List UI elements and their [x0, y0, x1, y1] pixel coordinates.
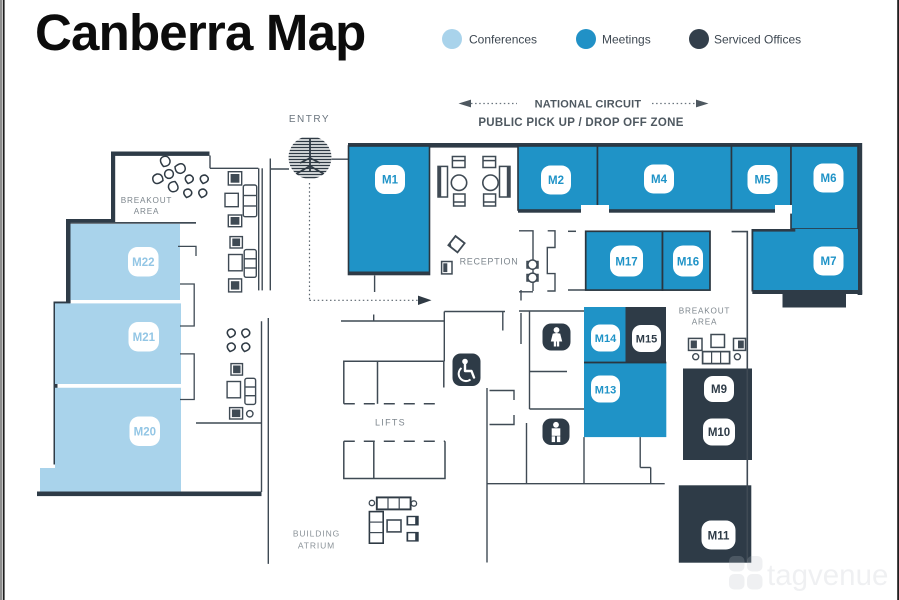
svg-text:PUBLIC PICK UP / DROP OFF ZONE: PUBLIC PICK UP / DROP OFF ZONE [478, 117, 683, 129]
svg-text:M11: M11 [708, 531, 730, 543]
svg-text:LIFTS: LIFTS [375, 418, 406, 428]
svg-text:M1: M1 [382, 175, 399, 187]
svg-text:M5: M5 [755, 175, 772, 187]
svg-text:M10: M10 [708, 427, 730, 439]
svg-text:M20: M20 [134, 427, 156, 439]
svg-text:ATRIUM: ATRIUM [298, 541, 335, 551]
svg-text:M15: M15 [636, 334, 657, 346]
svg-text:M13: M13 [595, 385, 616, 397]
svg-text:Meetings: Meetings [602, 33, 651, 47]
svg-text:Canberra Map: Canberra Map [35, 4, 366, 61]
svg-text:AREA: AREA [134, 207, 160, 216]
svg-text:BREAKOUT: BREAKOUT [121, 196, 172, 205]
svg-text:M21: M21 [133, 332, 156, 344]
svg-text:tagvenue: tagvenue [767, 559, 888, 592]
svg-text:RECEPTION: RECEPTION [460, 257, 519, 267]
svg-text:NATIONAL CIRCUIT: NATIONAL CIRCUIT [535, 99, 642, 111]
svg-text:M6: M6 [821, 173, 837, 185]
svg-text:Serviced Offices: Serviced Offices [714, 33, 801, 47]
svg-text:M2: M2 [548, 175, 564, 187]
svg-text:BUILDING: BUILDING [293, 529, 340, 539]
svg-text:M16: M16 [677, 257, 699, 269]
svg-text:AREA: AREA [692, 318, 718, 327]
svg-text:M17: M17 [615, 257, 637, 269]
svg-text:M14: M14 [595, 333, 617, 345]
svg-text:M7: M7 [821, 256, 837, 268]
svg-text:BREAKOUT: BREAKOUT [679, 307, 730, 316]
svg-text:M22: M22 [132, 257, 154, 269]
svg-text:ENTRY: ENTRY [289, 114, 330, 125]
svg-text:M4: M4 [651, 174, 668, 186]
svg-text:M9: M9 [711, 384, 727, 396]
svg-text:Conferences: Conferences [469, 33, 537, 47]
